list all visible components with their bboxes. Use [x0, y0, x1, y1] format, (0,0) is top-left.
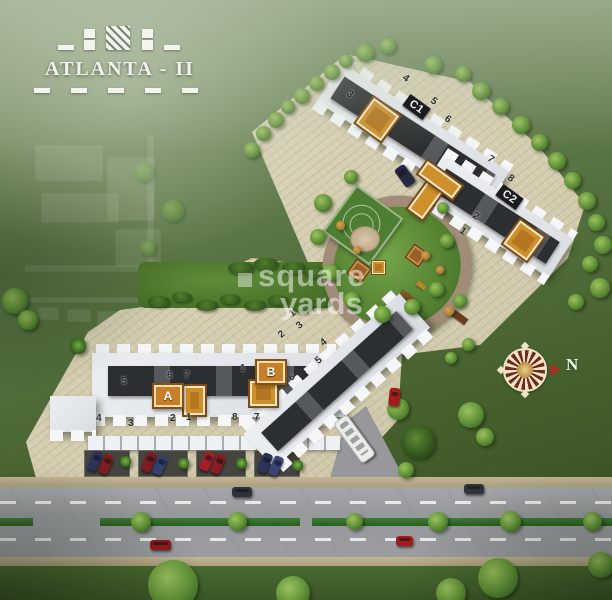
orange-marker	[372, 261, 385, 274]
tree	[244, 142, 260, 158]
orange-marker	[184, 386, 205, 415]
hedge	[244, 300, 266, 311]
unit-number: 8	[232, 412, 238, 423]
tree	[444, 306, 454, 316]
tree	[436, 266, 444, 274]
tree	[568, 294, 584, 310]
tree	[339, 54, 353, 68]
square-yards-logo-icon	[238, 273, 252, 287]
unit-number: 5	[121, 376, 127, 387]
tree	[294, 88, 310, 104]
tree	[256, 126, 271, 141]
compass-north-label: N	[566, 355, 578, 375]
tree	[500, 511, 521, 532]
tree	[424, 56, 442, 74]
hedge	[220, 294, 240, 304]
tree	[578, 192, 596, 210]
tree	[356, 44, 374, 62]
car	[232, 487, 252, 497]
unit-number: 3	[128, 418, 134, 429]
tree	[310, 229, 326, 245]
median-segment	[100, 518, 300, 526]
tree	[292, 460, 303, 471]
tree	[236, 458, 247, 469]
tree	[455, 66, 471, 82]
tree	[428, 512, 448, 532]
compass-hub	[517, 362, 533, 378]
block-label: A	[152, 383, 184, 409]
tree	[353, 246, 361, 254]
tree	[344, 170, 358, 184]
tree	[462, 338, 475, 351]
tree	[445, 352, 457, 364]
lane-marking-bottom	[0, 538, 612, 541]
tree	[346, 513, 363, 530]
car	[396, 536, 413, 546]
unit-number: 1	[186, 412, 192, 423]
tree	[162, 200, 184, 222]
project-title: ATLANTA - II	[30, 58, 210, 81]
tree	[374, 306, 391, 323]
compass-rose: N	[503, 348, 547, 392]
tree	[120, 456, 131, 467]
site-plan-atlanta-2: 345678215671432187123456 C1C2AB N square…	[0, 0, 612, 600]
tree	[583, 512, 602, 531]
tree	[548, 152, 566, 170]
ghost-plan-block	[36, 146, 102, 180]
tree	[437, 202, 449, 214]
tree	[453, 294, 467, 308]
north-arrow-icon	[550, 364, 567, 376]
tree	[134, 162, 154, 182]
tree	[594, 236, 612, 254]
tree	[492, 98, 509, 115]
tree	[458, 402, 484, 428]
hedge	[196, 300, 218, 311]
car	[150, 540, 171, 550]
tree	[588, 552, 612, 578]
ghost-plan-block	[68, 310, 90, 321]
tree	[421, 251, 430, 260]
tree	[472, 82, 490, 100]
unit-number: 7	[254, 412, 260, 423]
tree	[588, 214, 605, 231]
median-segment	[0, 518, 33, 526]
ghost-plan-block	[38, 308, 58, 319]
unit-number: 4	[96, 413, 102, 424]
unit-number: 2	[170, 413, 176, 424]
unit-number: 6	[167, 370, 173, 381]
tree	[512, 116, 530, 134]
tree	[131, 512, 151, 532]
tree	[324, 64, 340, 80]
tree	[268, 112, 284, 128]
tree	[18, 310, 38, 330]
ghost-plan-block	[42, 194, 118, 222]
tree	[70, 338, 86, 354]
tree	[314, 194, 332, 212]
lane-marking-top	[0, 501, 612, 504]
tree	[281, 100, 295, 114]
building-a-west-wing	[50, 396, 96, 432]
unit-number: 1	[240, 363, 246, 374]
tree	[140, 240, 156, 256]
hedge	[148, 296, 170, 307]
tree	[476, 428, 494, 446]
tree	[401, 425, 435, 459]
tree	[178, 458, 189, 469]
tree	[309, 76, 324, 91]
tree	[582, 256, 598, 272]
tree	[478, 558, 518, 598]
tree	[404, 299, 420, 315]
car	[388, 387, 401, 406]
tree	[228, 512, 247, 531]
hedge	[172, 292, 192, 302]
tree	[380, 38, 396, 54]
tree	[436, 578, 466, 600]
sidewalk-top	[0, 477, 612, 487]
tree	[590, 278, 610, 298]
watermark-line2: yards	[280, 286, 363, 322]
tree	[564, 172, 581, 189]
sidewalk-bottom	[0, 557, 612, 566]
block-label: B	[255, 359, 287, 385]
unit-number: 7	[184, 370, 190, 381]
tree	[429, 282, 444, 297]
tree	[531, 134, 548, 151]
tree	[336, 221, 345, 230]
car	[464, 484, 484, 494]
tree	[440, 234, 454, 248]
tree	[398, 462, 414, 478]
